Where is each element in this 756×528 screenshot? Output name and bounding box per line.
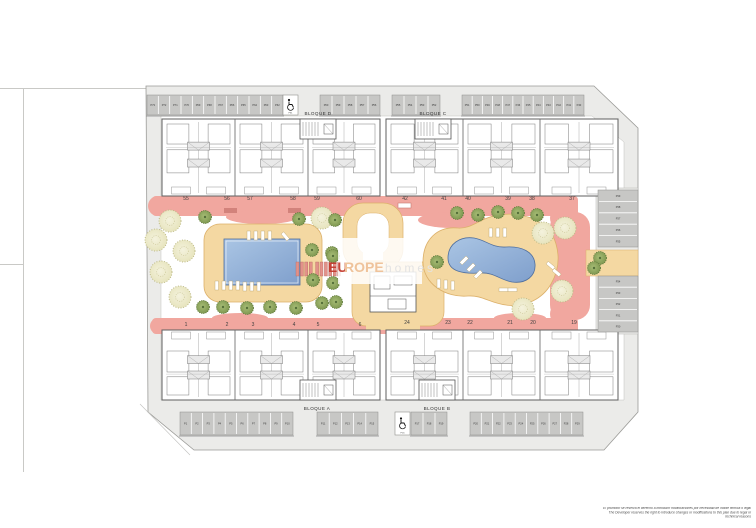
red-planter xyxy=(324,262,327,276)
tree-dark xyxy=(199,211,212,224)
parking-stall-label: P62 xyxy=(275,103,280,107)
tree-dark xyxy=(472,209,485,222)
bloque-b-label: BLOQUE B xyxy=(424,406,451,411)
parking-stall-label: P11 xyxy=(321,422,326,426)
parking-stall-label: P31 xyxy=(616,313,621,317)
tree-light xyxy=(512,298,534,320)
sun-lounger xyxy=(268,231,272,240)
unit-number: 55 xyxy=(183,196,189,202)
tree-light xyxy=(169,286,191,308)
parking-stall-label: P5 xyxy=(229,422,233,426)
sun-lounger xyxy=(254,231,258,240)
unit-number: 39 xyxy=(505,196,511,202)
parking-stall-label: P43 xyxy=(546,103,551,107)
tree-dark xyxy=(451,207,464,220)
unit-number: 1 xyxy=(185,322,188,328)
parking-stall-label: P67 xyxy=(218,103,223,107)
stair-core xyxy=(415,119,451,139)
parking-stall-label: P19 xyxy=(439,422,444,426)
unit-number: 37 xyxy=(569,196,575,202)
red-planter xyxy=(300,262,303,276)
tree-dark xyxy=(306,244,319,257)
tree-dark xyxy=(217,301,230,314)
parking-stall-label: P63 xyxy=(264,103,269,107)
parking-stall-label: P6 xyxy=(241,422,245,426)
sun-lounger xyxy=(222,281,226,290)
unit-number: 4 xyxy=(293,322,296,328)
parking-stall-label: P41 xyxy=(566,103,571,107)
parking-group: P17P18P19 xyxy=(410,412,448,436)
watermark-homes: homes xyxy=(385,261,436,275)
parking-stall-label: P8 xyxy=(263,422,267,426)
bloque-a-label: BLOQUE A xyxy=(304,406,331,411)
parking-stall-label: P1 xyxy=(184,422,188,426)
parking-stall-label: P32 xyxy=(616,302,621,306)
unit-number: 6 xyxy=(359,322,362,328)
parking-stall-label: P18 xyxy=(427,422,432,426)
sun-lounger xyxy=(489,228,493,237)
parking-stall-label: P14 xyxy=(357,422,362,426)
sun-lounger xyxy=(437,279,441,288)
stair-core xyxy=(300,380,336,400)
red-planter xyxy=(320,262,323,276)
unit-number: 56 xyxy=(224,196,230,202)
parking-group: P34P33P32P31P30 xyxy=(598,276,638,332)
unit-number: 58 xyxy=(290,196,296,202)
parking-stall-label: P12 xyxy=(333,422,338,426)
tree-dark xyxy=(492,206,505,219)
parking-stall-label: P21 xyxy=(485,422,490,426)
parking-stall-label: P50 xyxy=(475,103,480,107)
parking-stall-label: P40 xyxy=(577,103,582,107)
unit-number: 40 xyxy=(465,196,471,202)
parking-stall-label: P3 xyxy=(207,422,211,426)
sun-lounger xyxy=(503,228,507,237)
parking-stall-label: P60 xyxy=(324,103,329,107)
parking-stall-label: P73 xyxy=(150,103,155,107)
parking-stall-label: P55 xyxy=(396,103,401,107)
unit-number: 42 xyxy=(402,196,408,202)
unit-number: 57 xyxy=(247,196,253,202)
watermark: EU ROPE homes xyxy=(328,238,436,284)
parking-stall-label: P33 xyxy=(616,291,621,295)
parking-stall-label: P20 xyxy=(473,422,478,426)
red-planter xyxy=(296,262,299,276)
parking-stall-label: P68 xyxy=(207,103,212,107)
parking-group: P73P72P71P70P69P68P67P66P65P64P63P62 xyxy=(146,95,284,116)
tree-light xyxy=(150,261,172,283)
tree-dark xyxy=(330,296,343,309)
tree-dark xyxy=(588,262,601,275)
bloque-d-label: BLOQUE D xyxy=(305,111,332,116)
parking-stall-label: P29 xyxy=(575,422,580,426)
parking-stall-label: P47 xyxy=(505,103,510,107)
building xyxy=(162,119,380,196)
tree-dark xyxy=(264,301,277,314)
parking-stall-label: P25 xyxy=(530,422,535,426)
parking-stall-label: P27 xyxy=(552,422,557,426)
tree-light xyxy=(554,217,576,239)
parking-stall-label: P66 xyxy=(230,103,235,107)
parking-stall-label: P42 xyxy=(556,103,561,107)
parking-stall-label: P2 xyxy=(195,422,199,426)
parking-stall-label: P46 xyxy=(516,103,521,107)
unit-number: 41 xyxy=(441,196,447,202)
parking-stall-label: P38 xyxy=(616,205,621,209)
stair-core xyxy=(419,380,455,400)
building xyxy=(386,119,618,196)
parking-stall-label: P72 xyxy=(162,103,167,107)
tree-dark xyxy=(293,213,306,226)
parking-group: P1P2P3P4P5P6P7P8P9P10 xyxy=(179,412,294,436)
parking-stall-label: P48 xyxy=(495,103,500,107)
parking-stall-label: P15 xyxy=(370,422,375,426)
tree-dark xyxy=(307,274,320,287)
unit-number: 2 xyxy=(226,322,229,328)
sun-lounger xyxy=(508,288,517,292)
parking-stall-label: P9 xyxy=(274,422,278,426)
building xyxy=(386,330,618,400)
sun-lounger xyxy=(236,281,240,290)
parking-stall-label: P65 xyxy=(241,103,246,107)
tree-dark xyxy=(329,214,342,227)
unit-number: 5 xyxy=(317,322,320,328)
parking-stall-label: P59 xyxy=(336,103,341,107)
sun-lounger xyxy=(243,282,247,291)
sun-lounger xyxy=(451,281,455,290)
parking-group: P51P50P49P48P47P46P45P44P43P42P41P40 xyxy=(461,95,585,116)
parking-stall-label: P7 xyxy=(252,422,256,426)
red-planter xyxy=(305,262,308,276)
unit-number: 23 xyxy=(445,320,451,326)
tree-dark xyxy=(290,302,303,315)
tree-light xyxy=(173,240,195,262)
parking-stall-label: P30 xyxy=(616,325,621,329)
parking-stall-label: P45 xyxy=(526,103,531,107)
tree-dark xyxy=(197,301,210,314)
watermark-rope: ROPE xyxy=(344,259,384,275)
parking-stall-label: P70 xyxy=(184,103,189,107)
parking-stall-label: P53 xyxy=(420,103,425,107)
parking-stall-label: P69 xyxy=(196,103,201,107)
parking-stall-label: P23 xyxy=(507,422,512,426)
site-plan-canvas: P73P72P71P70P69P68P67P66P65P64P63P62P60P… xyxy=(0,0,756,528)
unit-number: 3 xyxy=(252,322,255,328)
parking-group: P11P12P13P14P15 xyxy=(316,412,379,436)
parking-stall-label: P56 xyxy=(372,103,377,107)
parking-stall-label: P39 xyxy=(616,194,621,198)
red-planter xyxy=(316,262,319,276)
unit-number: 20 xyxy=(530,320,536,326)
unit-number: 38 xyxy=(529,196,535,202)
bloque-c-label: BLOQUE C xyxy=(420,111,447,116)
unit-number: 60 xyxy=(356,196,362,202)
handicap-stall: P61 xyxy=(283,95,298,115)
unit-number: 59 xyxy=(314,196,320,202)
unit-number: 22 xyxy=(467,320,473,326)
tree-dark xyxy=(531,209,544,222)
site-plan-drawing: P73P72P71P70P69P68P67P66P65P64P63P62P60P… xyxy=(0,0,756,528)
parking-stall-label: P57 xyxy=(360,103,365,107)
sun-lounger xyxy=(229,281,233,290)
sun-lounger xyxy=(499,288,508,292)
sun-lounger xyxy=(247,231,251,240)
tree-dark xyxy=(316,297,329,310)
parking-stall-label: P34 xyxy=(616,280,621,284)
handicap-stall: P16 xyxy=(395,412,410,435)
parking-stall-label: P49 xyxy=(485,103,490,107)
stair-core xyxy=(300,119,336,139)
tree-dark xyxy=(512,207,525,220)
unit-number: 24 xyxy=(404,320,410,326)
parking-stall-label: P4 xyxy=(218,422,222,426)
parking-stall-label: P37 xyxy=(616,217,621,221)
unit-number: 21 xyxy=(507,320,513,326)
sun-lounger xyxy=(444,280,448,289)
parking-stall-label: P22 xyxy=(496,422,501,426)
parking-stall-label: P51 xyxy=(465,103,470,107)
parking-stall-label: P54 xyxy=(408,103,413,107)
parking-stall-label: P17 xyxy=(415,422,420,426)
parking-stall-label: P36 xyxy=(616,228,621,232)
sun-lounger xyxy=(496,228,500,237)
disclaimer: El promotor se reserva el derecho a intr… xyxy=(603,507,752,519)
tree-dark xyxy=(327,277,340,290)
parking-stall-label: P52 xyxy=(432,103,437,107)
parking-stall-label: P13 xyxy=(345,422,350,426)
parking-stall-label: P10 xyxy=(285,422,290,426)
disclaimer-en: The Developer reserves the right to intr… xyxy=(603,511,752,519)
tree-light xyxy=(145,229,167,251)
parking-stall-label: P71 xyxy=(173,103,178,107)
sun-lounger xyxy=(261,231,265,240)
building xyxy=(162,330,380,400)
tree-light xyxy=(159,210,181,232)
rectangular-pool xyxy=(224,239,300,285)
tree-dark xyxy=(241,302,254,315)
sun-lounger xyxy=(250,282,254,291)
parking-stall-label: P24 xyxy=(519,422,524,426)
tree-light xyxy=(551,280,573,302)
sun-lounger xyxy=(257,282,261,291)
parking-stall-label: P44 xyxy=(536,103,541,107)
parking-stall-label: P26 xyxy=(541,422,546,426)
parking-group: P39P38P37P36P35 xyxy=(598,190,638,247)
unit-number: 19 xyxy=(571,320,577,326)
parking-stall-label: P58 xyxy=(348,103,353,107)
parking-group: P20P21P22P23P24P25P26P27P28P29 xyxy=(469,412,584,436)
parking-stall-label: P64 xyxy=(252,103,257,107)
parking-stall-label: P28 xyxy=(564,422,569,426)
sun-lounger xyxy=(215,281,219,290)
parking-stall-label: P35 xyxy=(616,239,621,243)
tree-light xyxy=(532,222,554,244)
